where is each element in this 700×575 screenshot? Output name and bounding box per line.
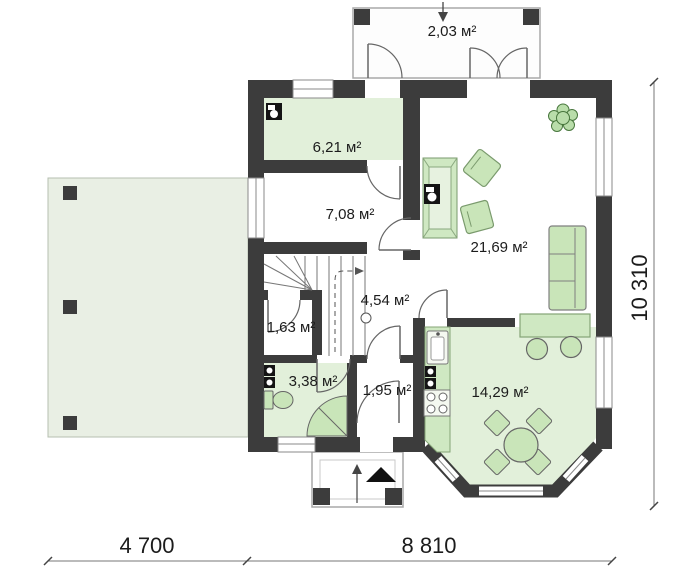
porch-post: [385, 488, 402, 505]
floor-plan: 2,03 м² 6,21 м² 7,08 м² 4,54 м² 1,63 м² …: [0, 0, 700, 575]
dimension-right: 10 310: [627, 78, 658, 510]
kitchen-sink-icon: [427, 331, 448, 364]
entry-porch-top: [353, 2, 540, 78]
kitchen-counter: [424, 327, 450, 452]
dimension-bottom: 4 700 8 810: [44, 533, 616, 565]
porch-post: [354, 9, 370, 25]
floor-plan-drawing: 2,03 м² 6,21 м² 7,08 м² 4,54 м² 1,63 м² …: [0, 0, 700, 575]
room-label-hallway: 7,08 м²: [326, 206, 375, 223]
sofa-icon: [549, 226, 586, 310]
window: [596, 118, 612, 196]
dim-label-right-span: 8 810: [401, 533, 456, 558]
bar-stool-icon: [527, 339, 548, 360]
room-label-vestibule: 1,95 м²: [363, 382, 412, 399]
terrace-post: [63, 300, 77, 314]
window: [278, 437, 315, 452]
porch-post: [523, 9, 539, 25]
dim-label-left-span: 4 700: [119, 533, 174, 558]
stove-icon: [424, 390, 450, 416]
porch-post: [313, 488, 330, 505]
bar-counter: [520, 314, 590, 337]
toilet-icon: [264, 391, 293, 409]
window: [248, 178, 264, 238]
fireplace-icon: [423, 158, 457, 238]
terrace: [48, 178, 248, 437]
dim-label-height-span: 10 310: [627, 254, 652, 321]
porch-bottom: [312, 452, 403, 507]
window: [293, 80, 333, 98]
window: [596, 337, 612, 408]
bar-stool-icon: [561, 337, 582, 358]
boiler-icon: [266, 103, 282, 120]
room-label-stair-hall: 4,54 м²: [361, 292, 410, 309]
room-label-bathroom: 3,38 м²: [289, 373, 338, 390]
room-label-entry-porch: 2,03 м²: [428, 23, 477, 40]
terrace-post: [63, 416, 77, 430]
porch-double-door-opening: [467, 80, 530, 98]
dining-table-icon: [504, 428, 538, 462]
porch-door-opening: [365, 80, 400, 98]
room-label-utility: 6,21 м²: [313, 139, 362, 156]
room-label-kitchen: 14,29 м²: [471, 384, 528, 401]
terrace-post: [63, 186, 77, 200]
room-label-living: 21,69 м²: [470, 239, 527, 256]
column: [361, 313, 371, 323]
front-door-opening: [360, 437, 393, 452]
room-label-closet: 1,63 м²: [267, 319, 316, 336]
